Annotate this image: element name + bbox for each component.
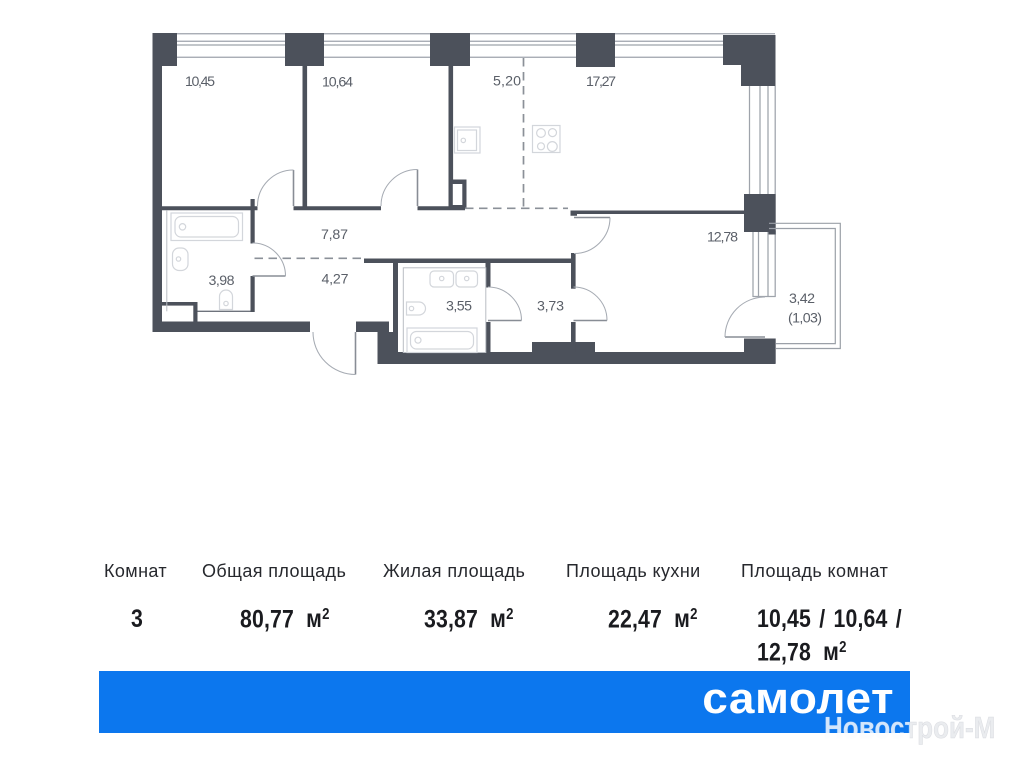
- svg-text:(1,03): (1,03): [788, 311, 822, 327]
- svg-text:4,27: 4,27: [322, 272, 349, 288]
- svg-text:10,45: 10,45: [185, 74, 215, 90]
- svg-text:3,98: 3,98: [209, 273, 235, 289]
- svg-text:5,20: 5,20: [493, 74, 521, 90]
- svg-text:10,64: 10,64: [322, 75, 353, 91]
- svg-text:17,27: 17,27: [586, 74, 616, 90]
- svg-text:3,42: 3,42: [789, 291, 815, 307]
- svg-text:3,55: 3,55: [446, 299, 472, 315]
- svg-text:12,78: 12,78: [707, 230, 738, 246]
- svg-text:3,73: 3,73: [537, 299, 564, 315]
- svg-text:7,87: 7,87: [321, 227, 348, 243]
